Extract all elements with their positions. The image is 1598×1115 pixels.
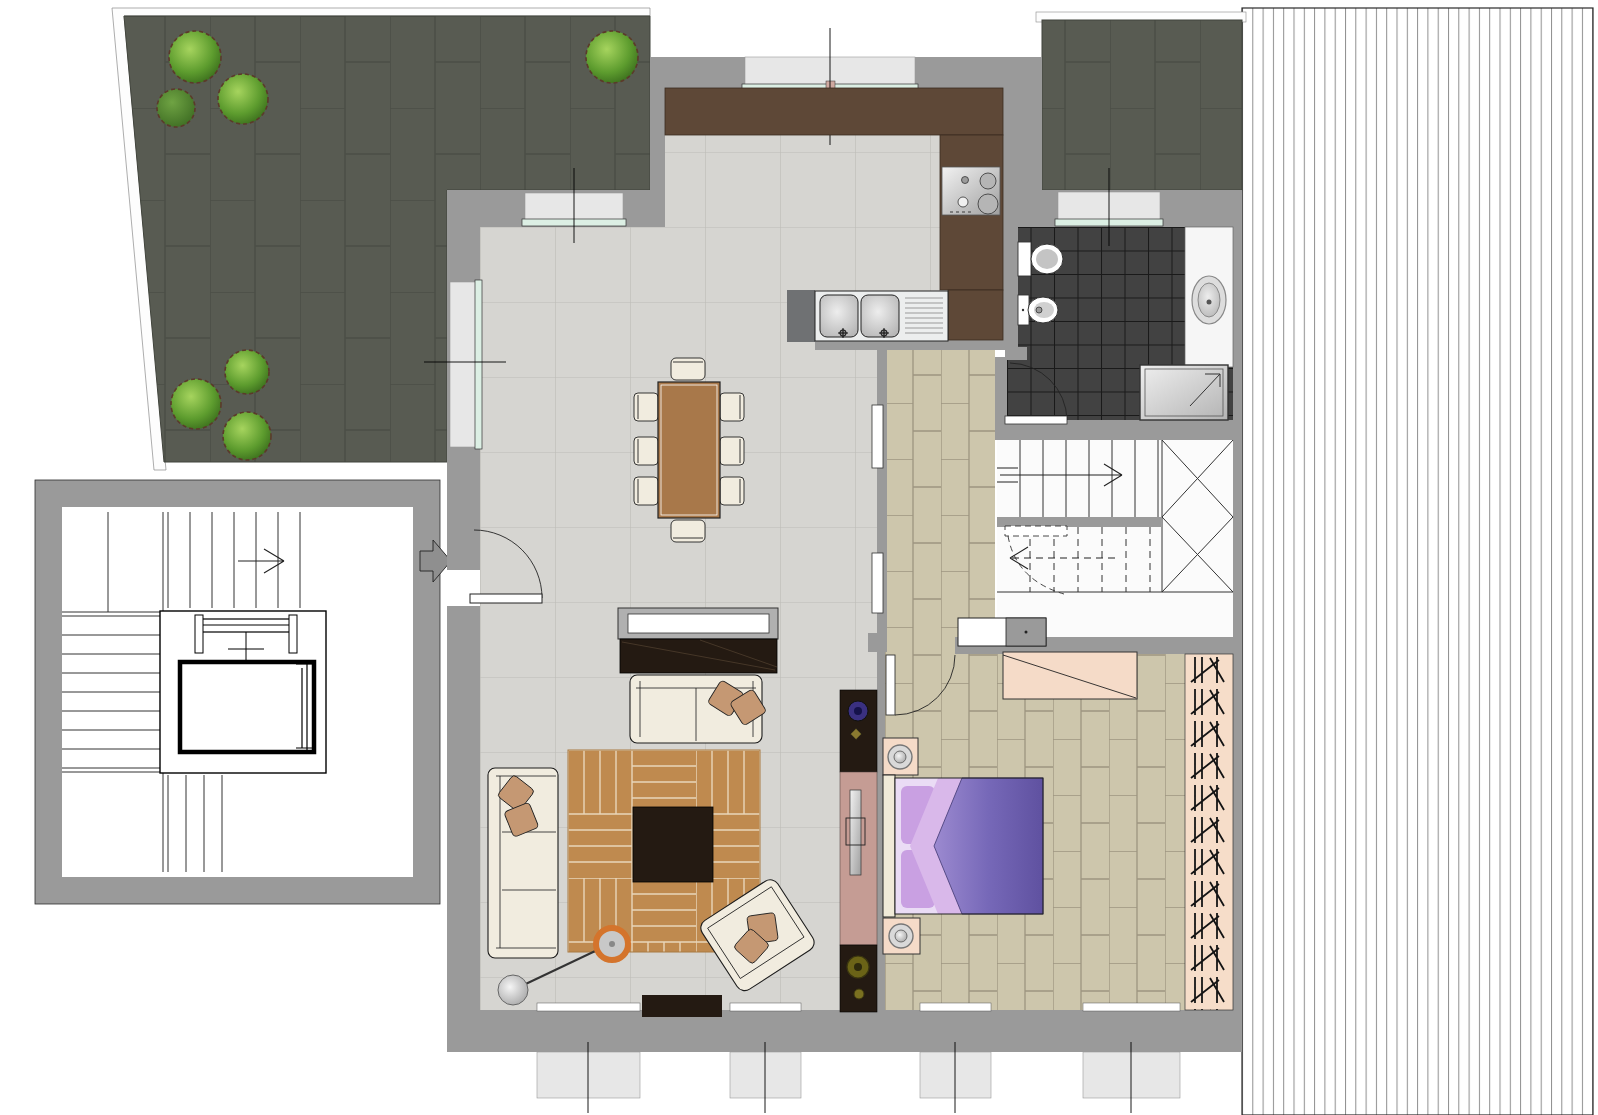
- dining-chair: [671, 358, 705, 380]
- plant-icon: [223, 412, 271, 460]
- plant-icon: [171, 379, 221, 429]
- kitchen-sink: [815, 291, 948, 341]
- nightstand-top: [883, 738, 918, 775]
- right-terrace: [1036, 12, 1246, 190]
- sofa-two-seat: [630, 675, 767, 743]
- kitchen-floor: [665, 135, 940, 227]
- tv-screen: [628, 614, 769, 633]
- burner-icon: [962, 177, 969, 184]
- common-stairwell: [35, 480, 440, 904]
- sofa-three-seat: [488, 768, 558, 958]
- door-mat: [642, 995, 722, 1017]
- double-bed: [883, 775, 1043, 917]
- plant-icon: [225, 350, 269, 394]
- floor-plan-canvas: [0, 0, 1598, 1115]
- shower: [1140, 365, 1228, 420]
- roof-deck-stripes: [1242, 8, 1593, 1115]
- faucet-icon: [1036, 307, 1042, 313]
- washbasin-counter: [1185, 227, 1233, 367]
- bidet: [1018, 295, 1058, 325]
- burner-icon: [958, 197, 968, 207]
- plant-icon: [586, 31, 638, 83]
- coffee-table: [633, 807, 713, 882]
- toilet: [1018, 242, 1063, 276]
- elevator-shaft: [180, 662, 314, 752]
- bedroom-door-leaf: [886, 655, 895, 715]
- bathroom-door-leaf: [1005, 416, 1067, 424]
- headboard: [883, 775, 895, 917]
- decor-icon: [854, 989, 864, 999]
- plant-icon: [218, 74, 268, 124]
- kitchen-counter-top: [665, 88, 1003, 135]
- lamp-base: [498, 975, 528, 1005]
- dining-table: [658, 382, 720, 518]
- hall-cabinet: [958, 618, 1046, 646]
- nightstand-bottom: [883, 918, 920, 954]
- burner-icon: [980, 173, 996, 189]
- cooktop: [942, 167, 1000, 215]
- media-wall-unit: [840, 690, 877, 1012]
- dining-chair: [671, 520, 705, 542]
- plant-icon: [157, 89, 195, 127]
- staircase-floor: [997, 440, 1233, 637]
- roof-deck: [1242, 8, 1593, 1115]
- dresser: [1003, 652, 1137, 699]
- tv-unit: [618, 608, 778, 673]
- terrace-paving: [1042, 20, 1242, 190]
- kitchen-partition: [787, 290, 815, 342]
- sink-basin: [861, 295, 899, 337]
- south-wall: [447, 1010, 1242, 1052]
- fireplace-insert: [850, 790, 861, 875]
- sink-basin: [820, 295, 858, 337]
- burner-icon: [978, 194, 998, 214]
- elevator: [160, 611, 326, 773]
- floor-plan-drawing: [0, 0, 1598, 1115]
- plant-icon: [169, 31, 221, 83]
- wardrobe-rail: [1185, 654, 1233, 1010]
- stair-divider: [997, 517, 1162, 527]
- entry-door-leaf: [470, 594, 542, 603]
- hallway-floor: [885, 347, 995, 652]
